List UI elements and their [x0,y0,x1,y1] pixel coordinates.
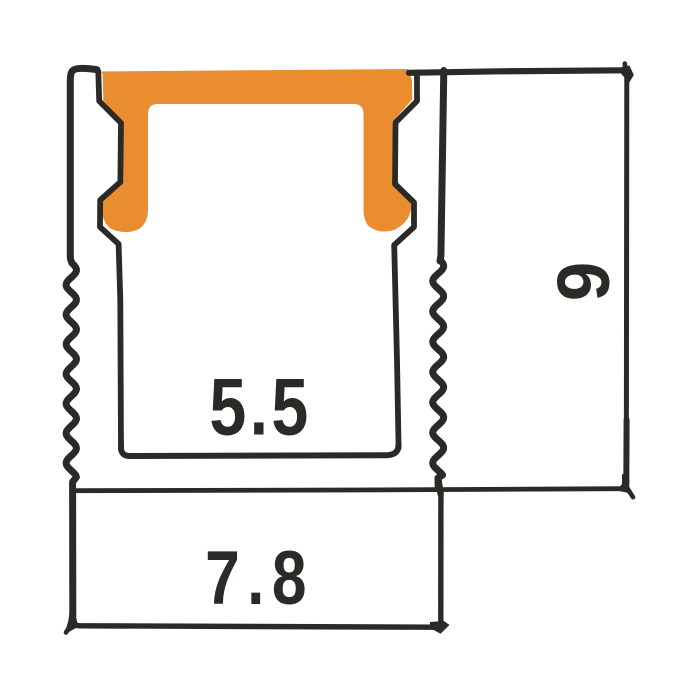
svg-text:9: 9 [543,262,626,302]
svg-text:5.5: 5.5 [209,361,311,452]
svg-text:7.8: 7.8 [205,535,314,620]
